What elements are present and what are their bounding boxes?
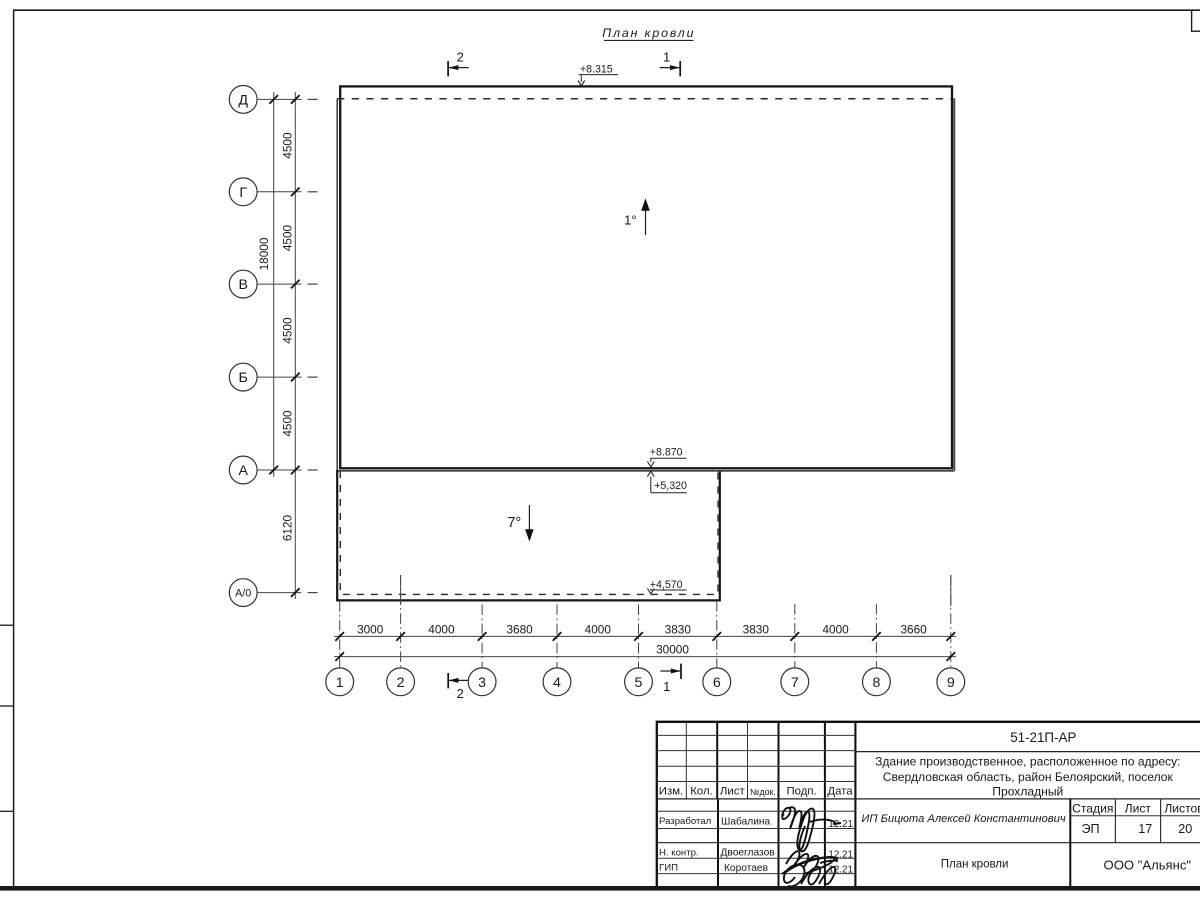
- svg-text:2: 2: [457, 49, 464, 64]
- svg-text:ГИП: ГИП: [659, 863, 678, 874]
- svg-text:+8.870: +8.870: [650, 446, 683, 458]
- svg-text:4000: 4000: [585, 622, 612, 636]
- svg-text:4500: 4500: [281, 317, 295, 344]
- svg-text:9: 9: [947, 675, 955, 691]
- svg-text:Листов: Листов: [1164, 802, 1200, 816]
- svg-text:ООО "Альянс": ООО "Альянс": [1104, 857, 1192, 872]
- svg-text:Разработал: Разработал: [659, 816, 711, 827]
- svg-text:1°: 1°: [624, 212, 637, 227]
- svg-text:Изм.: Изм.: [659, 786, 683, 798]
- svg-text:Кол.: Кол.: [690, 786, 713, 798]
- svg-text:3830: 3830: [743, 622, 770, 636]
- svg-text:+4,570: +4,570: [650, 579, 683, 591]
- svg-text:1: 1: [663, 679, 670, 694]
- svg-text:+8.315: +8.315: [580, 63, 613, 75]
- svg-text:3000: 3000: [357, 622, 384, 636]
- svg-text:В: В: [238, 277, 247, 293]
- svg-text:2: 2: [397, 675, 405, 691]
- svg-text:+5,320: +5,320: [654, 480, 687, 492]
- svg-text:3680: 3680: [506, 622, 533, 636]
- svg-text:А: А: [238, 463, 248, 479]
- svg-text:Здание производственное, распо: Здание производственное, расположенное п…: [875, 755, 1180, 769]
- svg-text:ЭП: ЭП: [1081, 822, 1099, 836]
- svg-text:4: 4: [553, 675, 561, 691]
- svg-text:20: 20: [1178, 822, 1192, 836]
- svg-text:Прохладный: Прохладный: [992, 785, 1063, 799]
- svg-text:2: 2: [457, 686, 464, 701]
- svg-text:План кровли: План кровли: [941, 859, 1009, 871]
- svg-text:4000: 4000: [428, 622, 455, 636]
- svg-text:6120: 6120: [281, 514, 295, 541]
- svg-text:4500: 4500: [281, 224, 295, 251]
- svg-text:Свердловская область, район Бе: Свердловская область, район Белоярский, …: [883, 770, 1174, 784]
- svg-text:Шабалина: Шабалина: [721, 816, 771, 828]
- svg-text:3: 3: [478, 675, 486, 691]
- svg-text:Дата: Дата: [827, 786, 853, 798]
- svg-text:Стадия: Стадия: [1072, 802, 1113, 816]
- svg-text:План кровли: План кровли: [602, 26, 695, 40]
- svg-text:А/0: А/0: [235, 588, 251, 600]
- svg-text:4500: 4500: [281, 410, 295, 437]
- svg-text:4500: 4500: [281, 132, 295, 159]
- svg-text:Двоеглазов: Двоеглазов: [721, 848, 775, 859]
- svg-text:17: 17: [1138, 822, 1152, 836]
- svg-text:Н. контр.: Н. контр.: [659, 847, 699, 858]
- svg-text:6: 6: [713, 675, 721, 691]
- svg-text:1: 1: [336, 675, 344, 691]
- svg-text:Коротаев: Коротаев: [724, 863, 768, 874]
- svg-text:Лист: Лист: [1125, 802, 1152, 816]
- svg-text:7°: 7°: [507, 515, 521, 531]
- svg-text:4000: 4000: [822, 622, 849, 636]
- svg-text:5: 5: [635, 675, 643, 691]
- svg-text:7: 7: [791, 675, 799, 691]
- svg-text:№док.: №док.: [750, 787, 776, 797]
- svg-text:51-21П-АР: 51-21П-АР: [1010, 730, 1076, 745]
- svg-text:Б: Б: [239, 370, 248, 386]
- svg-text:3830: 3830: [665, 622, 692, 636]
- svg-text:18000: 18000: [257, 237, 271, 270]
- svg-text:Г: Г: [239, 185, 247, 201]
- svg-text:Лист: Лист: [720, 786, 746, 798]
- svg-text:12.21: 12.21: [828, 864, 853, 875]
- svg-text:1: 1: [663, 49, 670, 64]
- svg-text:Д: Д: [238, 92, 248, 108]
- svg-text:30000: 30000: [656, 643, 689, 657]
- svg-text:8: 8: [872, 675, 880, 691]
- svg-text:12.21: 12.21: [828, 849, 853, 860]
- svg-text:3660: 3660: [900, 622, 927, 636]
- svg-text:ИП Бицюта Алексей Константинов: ИП Бицюта Алексей Константинович: [861, 813, 1065, 825]
- svg-text:Подп.: Подп.: [786, 786, 816, 798]
